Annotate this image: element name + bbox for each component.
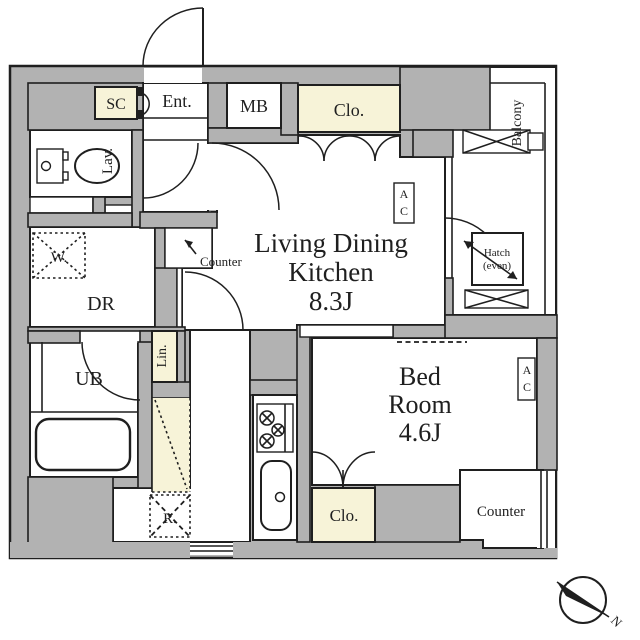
entry-label: Ent. (162, 91, 192, 111)
ldk-title-line1: Living Dining (254, 228, 408, 258)
ldk-counter-label: Counter (200, 254, 243, 269)
thin-partition (177, 268, 182, 330)
ldk-ac-a: A (400, 187, 409, 201)
sink-icon (261, 461, 291, 530)
compass: N (557, 577, 626, 630)
hatch-label: Hatch (484, 247, 511, 259)
bedroom-title-line2: Room (388, 390, 452, 419)
linen-label: Lin. (155, 345, 170, 368)
stove-icon (257, 404, 293, 452)
shoe-closet-label: SC (106, 96, 126, 113)
bedroom-sliding-door (300, 325, 393, 337)
compass-north-label: N (608, 613, 626, 631)
bedroom-closet-label: Clo. (330, 506, 359, 525)
bedroom-counter-label: Counter (477, 504, 525, 520)
floor-plan-drawing: Hatch (even) Balcony SC Ent. MB Clo. A C… (0, 0, 640, 640)
meter-box-label: MB (240, 96, 268, 116)
bedroom-title-line1: Bed (399, 362, 441, 391)
washer-label: W. (51, 250, 68, 266)
ldk-ac-c: C (400, 204, 408, 218)
balcony-equipment-small (528, 133, 543, 150)
fridge-space (152, 398, 190, 492)
bedroom-title-line3: 4.6J (399, 418, 442, 447)
bedroom-ac-a: A (523, 363, 532, 377)
kitchen (253, 395, 297, 540)
lavatory-counter (30, 197, 93, 213)
bathtub-icon (36, 419, 130, 470)
balcony-label: Balcony (510, 100, 525, 147)
floor-plan-page: Hatch (even) Balcony SC Ent. MB Clo. A C… (0, 0, 640, 640)
lavatory-threshold (105, 205, 132, 213)
lavatory-label: Lav. (100, 148, 116, 174)
fridge-label: R. (163, 511, 177, 527)
hatch-note-label: (even) (483, 260, 511, 272)
door-jamb-top (136, 87, 143, 96)
ldk-title-line2: Kitchen (288, 257, 374, 287)
ldk-title-line3: 8.3J (309, 286, 353, 316)
bedroom-window (537, 471, 555, 548)
bedroom-ac-c: C (523, 380, 531, 394)
ldk-door-opening (206, 144, 219, 210)
entrance-door-arc (143, 8, 203, 66)
unit-bath-label: UB (75, 368, 103, 390)
ldk-closet-label: Clo. (334, 100, 365, 120)
dressing-room-label: DR (87, 293, 115, 315)
south-window (190, 543, 233, 555)
entrance-opening (144, 68, 202, 83)
